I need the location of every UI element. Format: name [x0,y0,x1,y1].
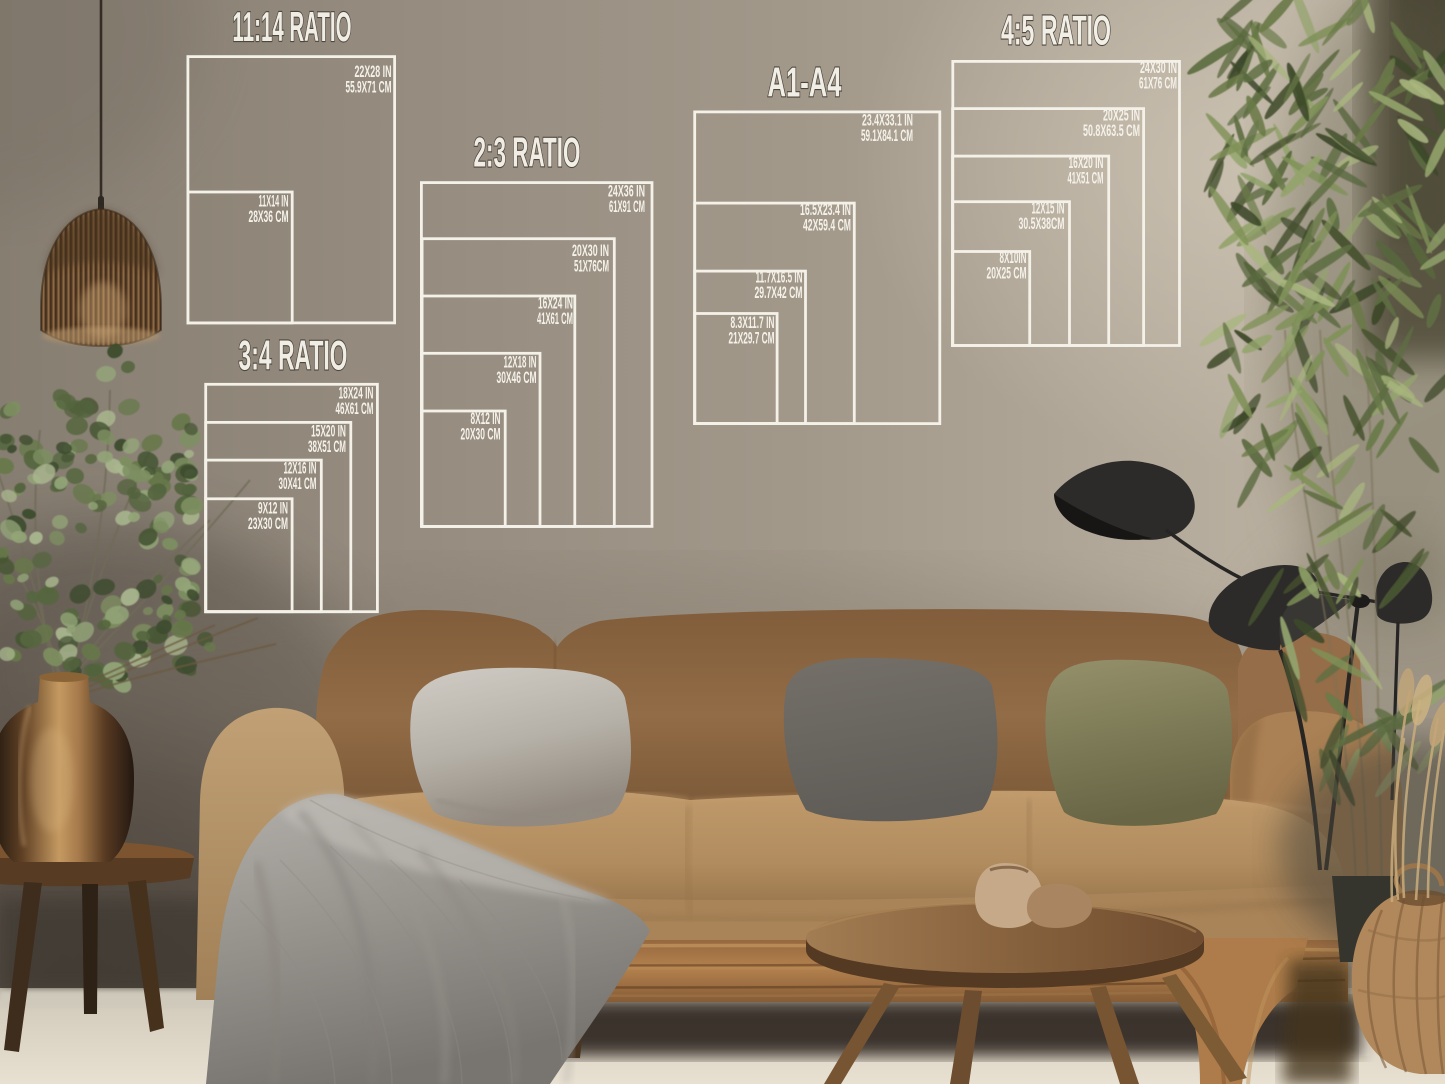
svg-text:21X29.7 CM: 21X29.7 CM [729,329,775,348]
svg-text:2:3 RATIO: 2:3 RATIO [474,129,581,176]
svg-text:50.8X63.5 CM: 50.8X63.5 CM [1083,121,1140,140]
svg-text:41X61 CM: 41X61 CM [537,309,573,328]
svg-text:30.5X38CM: 30.5X38CM [1019,214,1065,233]
svg-text:11:14 RATIO: 11:14 RATIO [233,3,352,50]
svg-text:20X30 CM: 20X30 CM [461,425,501,444]
svg-text:30X41 CM: 30X41 CM [279,474,317,493]
svg-text:30X46 CM: 30X46 CM [497,368,537,387]
svg-text:41X51 CM: 41X51 CM [1068,169,1104,188]
svg-text:23X30 CM: 23X30 CM [248,514,288,533]
svg-text:A1-A4: A1-A4 [768,59,842,106]
svg-text:61X76 CM: 61X76 CM [1139,74,1177,93]
svg-text:28X36 CM: 28X36 CM [249,207,289,226]
svg-text:38X51 CM: 38X51 CM [308,437,346,456]
svg-text:42X59.4 CM: 42X59.4 CM [803,216,851,235]
svg-text:59.1X84.1 CM: 59.1X84.1 CM [861,126,913,145]
svg-text:4:5 RATIO: 4:5 RATIO [1001,7,1111,54]
svg-text:51X76CM: 51X76CM [574,257,609,276]
svg-text:3:4 RATIO: 3:4 RATIO [239,332,348,379]
svg-text:61X91 CM: 61X91 CM [609,197,645,216]
svg-text:20X25 CM: 20X25 CM [987,264,1027,283]
svg-text:46X61 CM: 46X61 CM [336,399,374,418]
svg-text:55.9X71 CM: 55.9X71 CM [346,78,392,97]
svg-text:29.7X42 CM: 29.7X42 CM [755,283,803,302]
